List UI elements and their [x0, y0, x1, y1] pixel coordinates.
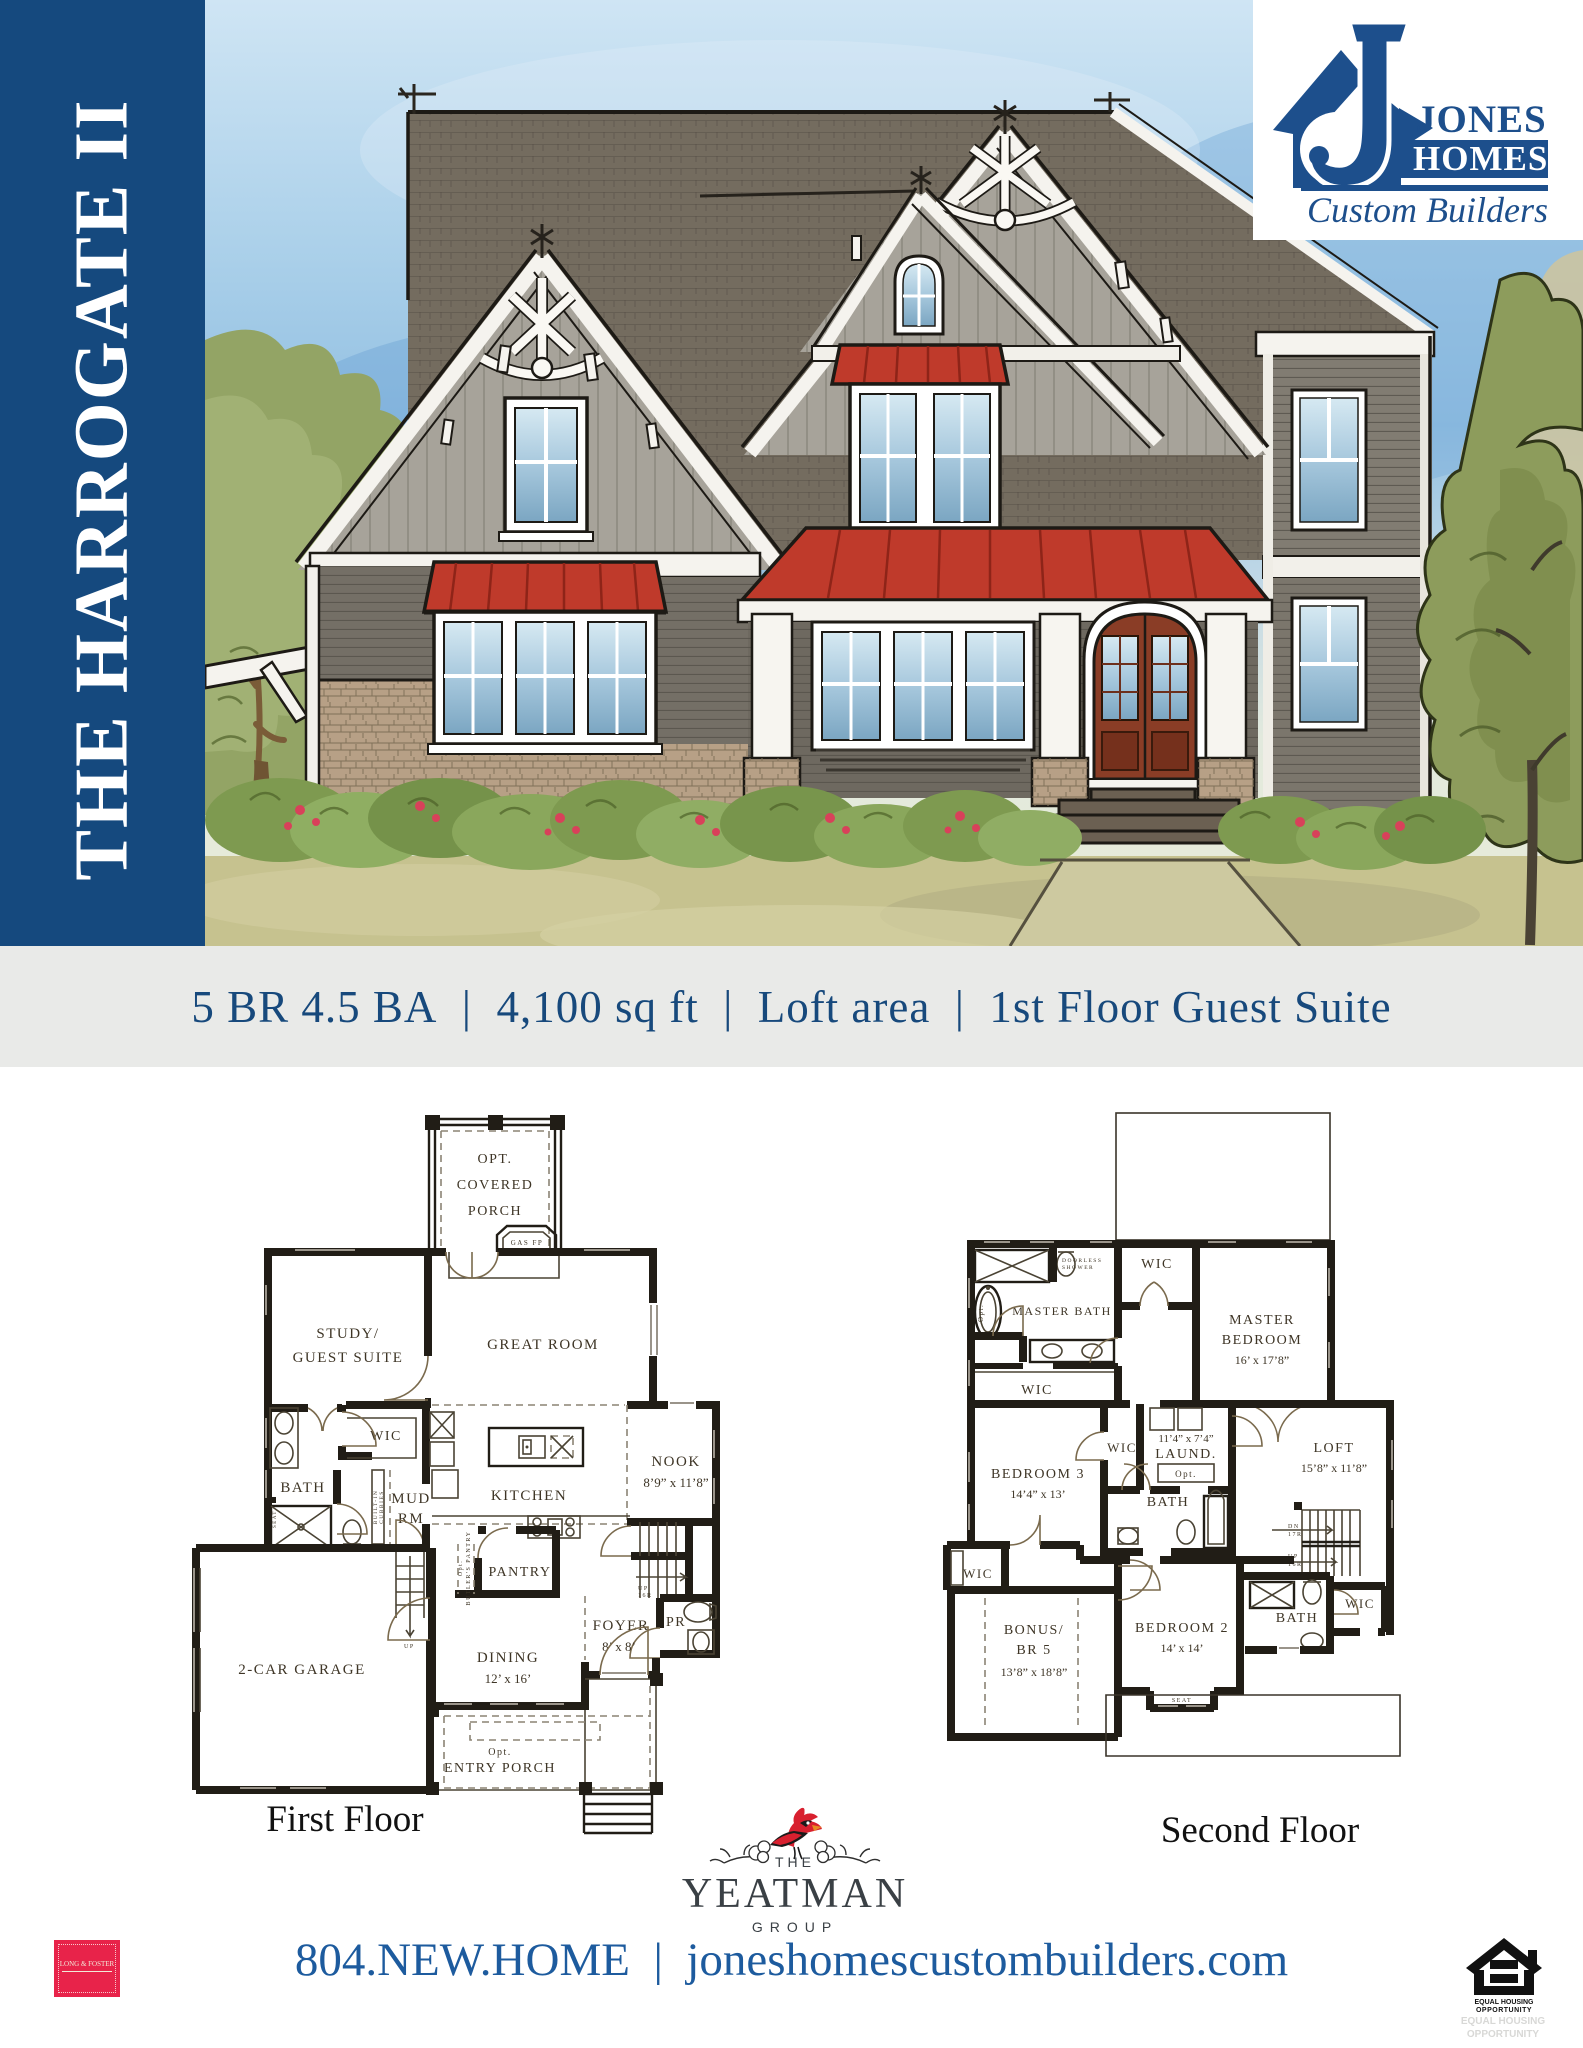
- svg-text:PANTRY: PANTRY: [489, 1565, 552, 1580]
- svg-text:UP: UP: [638, 1586, 649, 1592]
- svg-text:JONES: JONES: [1416, 98, 1547, 141]
- svg-text:14’4” x 13’: 14’4” x 13’: [1010, 1487, 1065, 1501]
- svg-text:16’ x 17’8”: 16’ x 17’8”: [1235, 1353, 1289, 1367]
- svg-text:MASTER BATH: MASTER BATH: [1012, 1304, 1112, 1318]
- svg-text:MASTER: MASTER: [1229, 1313, 1295, 1328]
- svg-text:16R: 16R: [638, 1593, 653, 1599]
- svg-text:WIC: WIC: [1021, 1383, 1053, 1398]
- svg-text:13’8” x 18’8”: 13’8” x 18’8”: [1001, 1665, 1068, 1679]
- svg-text:SEAT: SEAT: [273, 1510, 278, 1528]
- svg-text:DN: DN: [1288, 1524, 1300, 1530]
- svg-text:PR: PR: [666, 1615, 686, 1630]
- svg-text:YEATMAN: YEATMAN: [682, 1871, 908, 1917]
- svg-text:THE: THE: [775, 1854, 815, 1870]
- svg-text:BATH: BATH: [1147, 1495, 1190, 1510]
- svg-text:WIC: WIC: [963, 1566, 993, 1581]
- svg-text:BONUS/: BONUS/: [1004, 1623, 1064, 1638]
- svg-text:BEDROOM 2: BEDROOM 2: [1135, 1621, 1229, 1636]
- svg-text:CUBBIES: CUBBIES: [379, 1490, 385, 1524]
- svg-text:DINING: DINING: [477, 1650, 539, 1666]
- svg-text:Opt.: Opt.: [458, 1560, 464, 1577]
- svg-text:LAUND.: LAUND.: [1155, 1447, 1217, 1462]
- svg-text:OPT.: OPT.: [478, 1152, 513, 1167]
- svg-text:Custom Builders: Custom Builders: [1307, 190, 1548, 230]
- svg-text:HOMES: HOMES: [1413, 139, 1548, 178]
- svg-text:OPPORTUNITY: OPPORTUNITY: [1476, 2007, 1532, 2014]
- svg-text:FOYER: FOYER: [593, 1618, 650, 1634]
- svg-text:WIC: WIC: [1141, 1257, 1173, 1272]
- svg-text:Opt.: Opt.: [977, 1304, 985, 1322]
- svg-text:ENTRY PORCH: ENTRY PORCH: [444, 1761, 556, 1776]
- svg-text:KITCHEN: KITCHEN: [491, 1488, 567, 1504]
- svg-text:MUD: MUD: [391, 1491, 431, 1507]
- svg-text:SHOWER: SHOWER: [1062, 1265, 1094, 1271]
- svg-text:PORCH: PORCH: [468, 1204, 522, 1219]
- svg-text:15’8” x 11’8”: 15’8” x 11’8”: [1301, 1461, 1367, 1475]
- svg-text:BR 5: BR 5: [1016, 1643, 1051, 1658]
- svg-text:WIC: WIC: [1107, 1440, 1137, 1455]
- svg-text:GAS FP: GAS FP: [511, 1239, 544, 1247]
- svg-text:NOOK: NOOK: [651, 1454, 700, 1470]
- svg-text:BEDROOM: BEDROOM: [1222, 1333, 1303, 1348]
- svg-text:8’ x 8’: 8’ x 8’: [602, 1639, 636, 1654]
- svg-text:EQUAL HOUSING: EQUAL HOUSING: [1475, 1999, 1535, 2006]
- svg-text:2-CAR GARAGE: 2-CAR GARAGE: [238, 1662, 366, 1678]
- svg-text:GREAT ROOM: GREAT ROOM: [487, 1337, 599, 1353]
- svg-text:Opt.: Opt.: [488, 1747, 512, 1758]
- svg-text:14’ x 14’: 14’ x 14’: [1160, 1641, 1203, 1655]
- svg-text:DOORLESS: DOORLESS: [1062, 1258, 1102, 1264]
- svg-text:UP: UP: [404, 1644, 415, 1650]
- svg-text:BUTLER'S PANTRY: BUTLER'S PANTRY: [466, 1531, 472, 1606]
- svg-text:STUDY/: STUDY/: [316, 1326, 379, 1342]
- svg-text:BATH: BATH: [280, 1480, 325, 1496]
- svg-text:LOFT: LOFT: [1314, 1441, 1355, 1456]
- svg-text:WIC: WIC: [1345, 1596, 1375, 1611]
- svg-text:BEDROOM 3: BEDROOM 3: [991, 1467, 1085, 1482]
- svg-text:17R: 17R: [1288, 1532, 1303, 1538]
- svg-text:12’ x 16’: 12’ x 16’: [485, 1671, 532, 1686]
- svg-text:11’4” x 7’4”: 11’4” x 7’4”: [1158, 1433, 1213, 1445]
- svg-text:8’9” x 11’8”: 8’9” x 11’8”: [643, 1475, 708, 1490]
- svg-text:SEAT: SEAT: [1172, 1698, 1192, 1704]
- svg-text:BATH: BATH: [1276, 1611, 1319, 1626]
- svg-text:Opt.: Opt.: [1175, 1469, 1197, 1479]
- svg-text:GUEST SUITE: GUEST SUITE: [293, 1350, 404, 1366]
- svg-text:COVERED: COVERED: [457, 1178, 534, 1193]
